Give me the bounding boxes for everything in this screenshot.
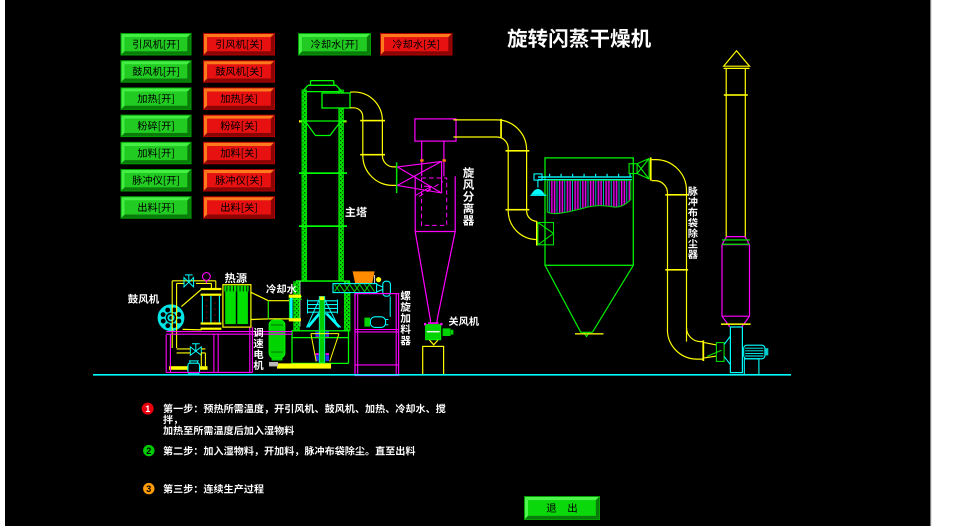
svg-text:2: 2 [146,446,151,456]
svg-text:1: 1 [145,404,150,414]
svg-text:3: 3 [146,484,151,494]
